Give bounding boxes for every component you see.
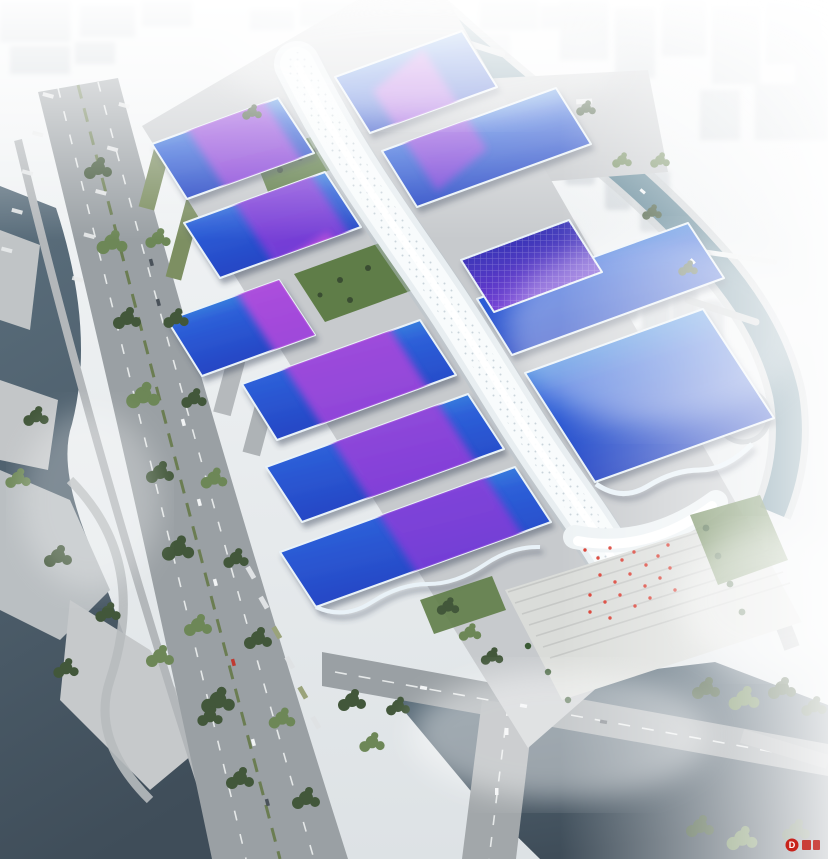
watermark-glyph-block — [802, 840, 811, 850]
watermark: D — [786, 839, 821, 852]
watermark-logo-letter: D — [789, 840, 796, 850]
watermark-glyph-block — [813, 840, 820, 850]
aerial-rendering-exhibition-center: D — [0, 0, 828, 859]
scene-canvas: D — [0, 0, 828, 859]
